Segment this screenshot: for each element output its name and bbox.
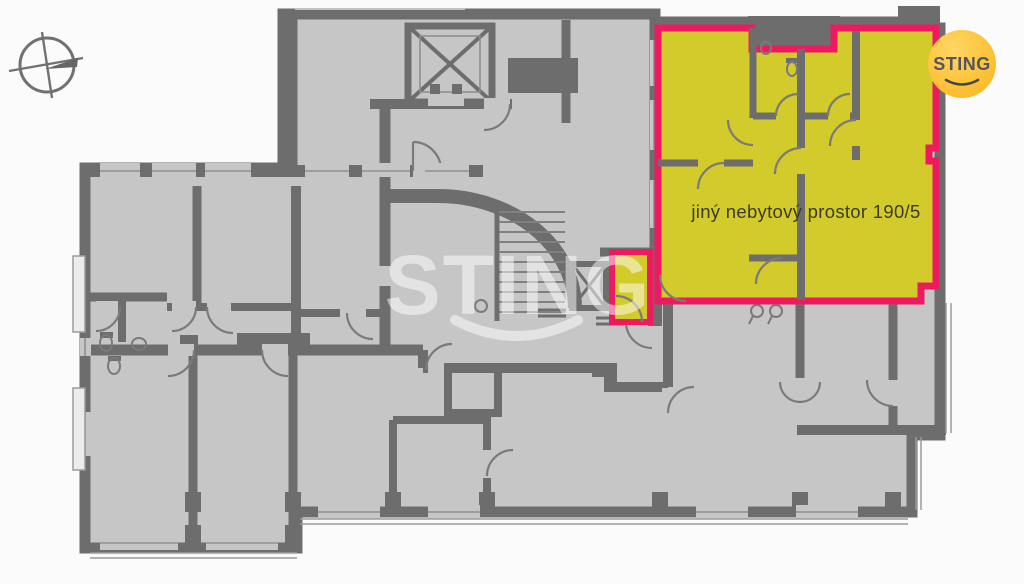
sting-logo: STING bbox=[928, 30, 996, 98]
watermark-text: STING bbox=[385, 238, 652, 332]
floor-plan-image: jiný nebytový prostor 190/5 STING STING bbox=[0, 0, 1024, 584]
floor-plan-page: jiný nebytový prostor 190/5 STING STING bbox=[0, 0, 1024, 584]
logo-text: STING bbox=[933, 54, 991, 74]
balcony-strip bbox=[73, 256, 85, 332]
compass-icon bbox=[9, 32, 83, 98]
unit-label: jiný nebytový prostor 190/5 bbox=[690, 201, 920, 222]
sting-watermark: STING bbox=[385, 238, 652, 336]
balcony-strip bbox=[73, 388, 85, 470]
highlighted-unit: jiný nebytový prostor 190/5 bbox=[658, 28, 936, 301]
shaft-block bbox=[508, 58, 578, 93]
